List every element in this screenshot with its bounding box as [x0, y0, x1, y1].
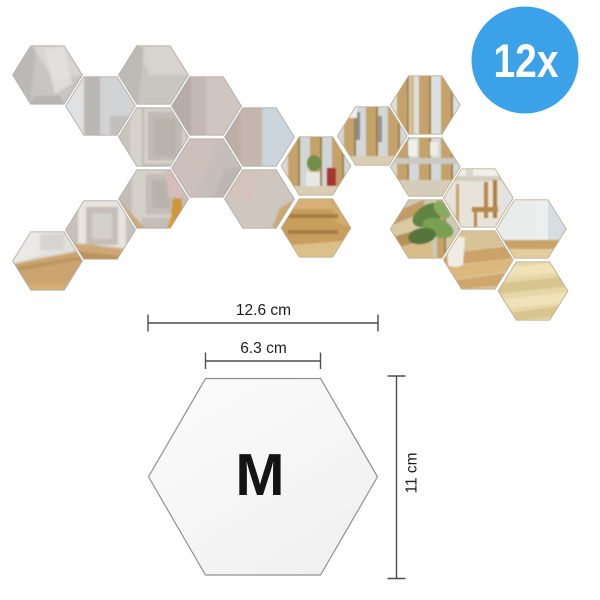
svg-text:12x: 12x [494, 34, 559, 87]
svg-text:6.3 cm: 6.3 cm [240, 340, 287, 357]
svg-text:M: M [235, 442, 284, 508]
svg-text:12.6 cm: 12.6 cm [236, 302, 291, 319]
svg-text:11 cm: 11 cm [404, 452, 421, 493]
